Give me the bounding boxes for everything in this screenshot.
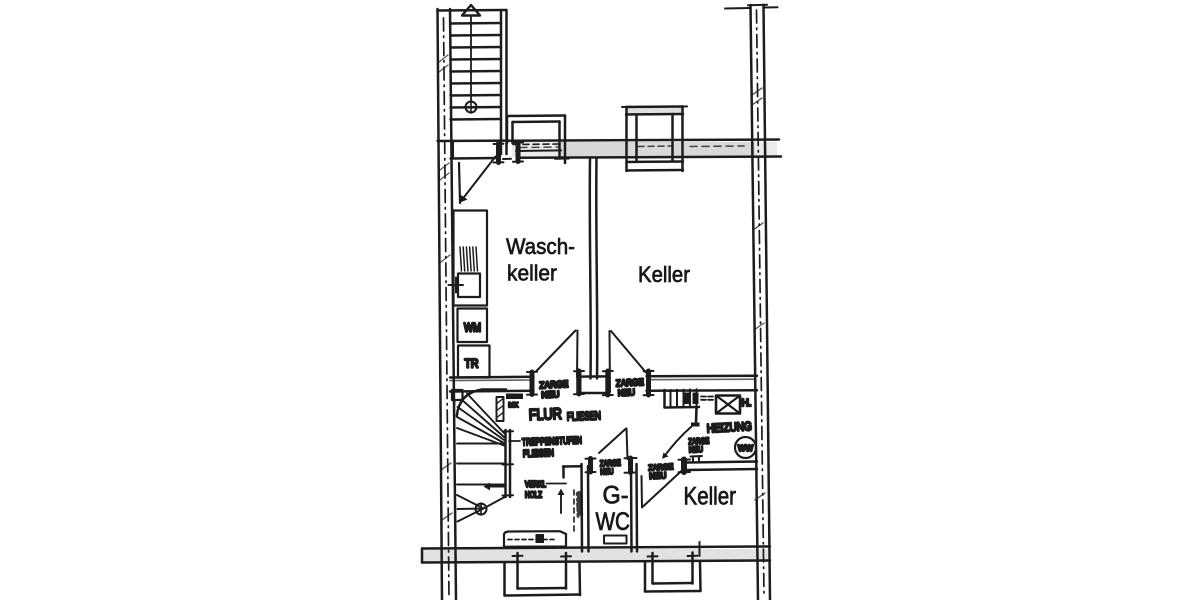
svg-text:HOLZ: HOLZ <box>525 491 542 500</box>
svg-text:G-: G- <box>603 482 629 510</box>
svg-text:NEU: NEU <box>600 467 614 477</box>
svg-text:TREPPENSTUFEN: TREPPENSTUFEN <box>522 435 582 448</box>
svg-text:NEU: NEU <box>649 470 667 481</box>
svg-text:FLUR: FLUR <box>529 406 563 424</box>
svg-text:MK: MK <box>509 402 519 409</box>
svg-text:TR: TR <box>465 359 479 371</box>
svg-text:HEIZUNG: HEIZUNG <box>706 419 752 435</box>
svg-text:NEU: NEU <box>689 445 704 455</box>
svg-text:NEU: NEU <box>541 389 559 400</box>
svg-text:VERKL: VERKL <box>525 480 547 489</box>
svg-text:Keller: Keller <box>638 262 690 287</box>
svg-text:NEU: NEU <box>618 387 636 398</box>
svg-text:keller: keller <box>507 261 557 286</box>
svg-text:FLIESEN: FLIESEN <box>567 410 601 423</box>
svg-text:WC: WC <box>596 508 631 536</box>
svg-text:WW: WW <box>738 443 753 453</box>
svg-text:Wasch-: Wasch- <box>506 234 575 259</box>
svg-text:H.: H. <box>742 398 752 409</box>
svg-text:FLIESEN: FLIESEN <box>523 448 554 460</box>
svg-text:WM: WM <box>464 323 481 335</box>
svg-text:Keller: Keller <box>684 483 737 511</box>
